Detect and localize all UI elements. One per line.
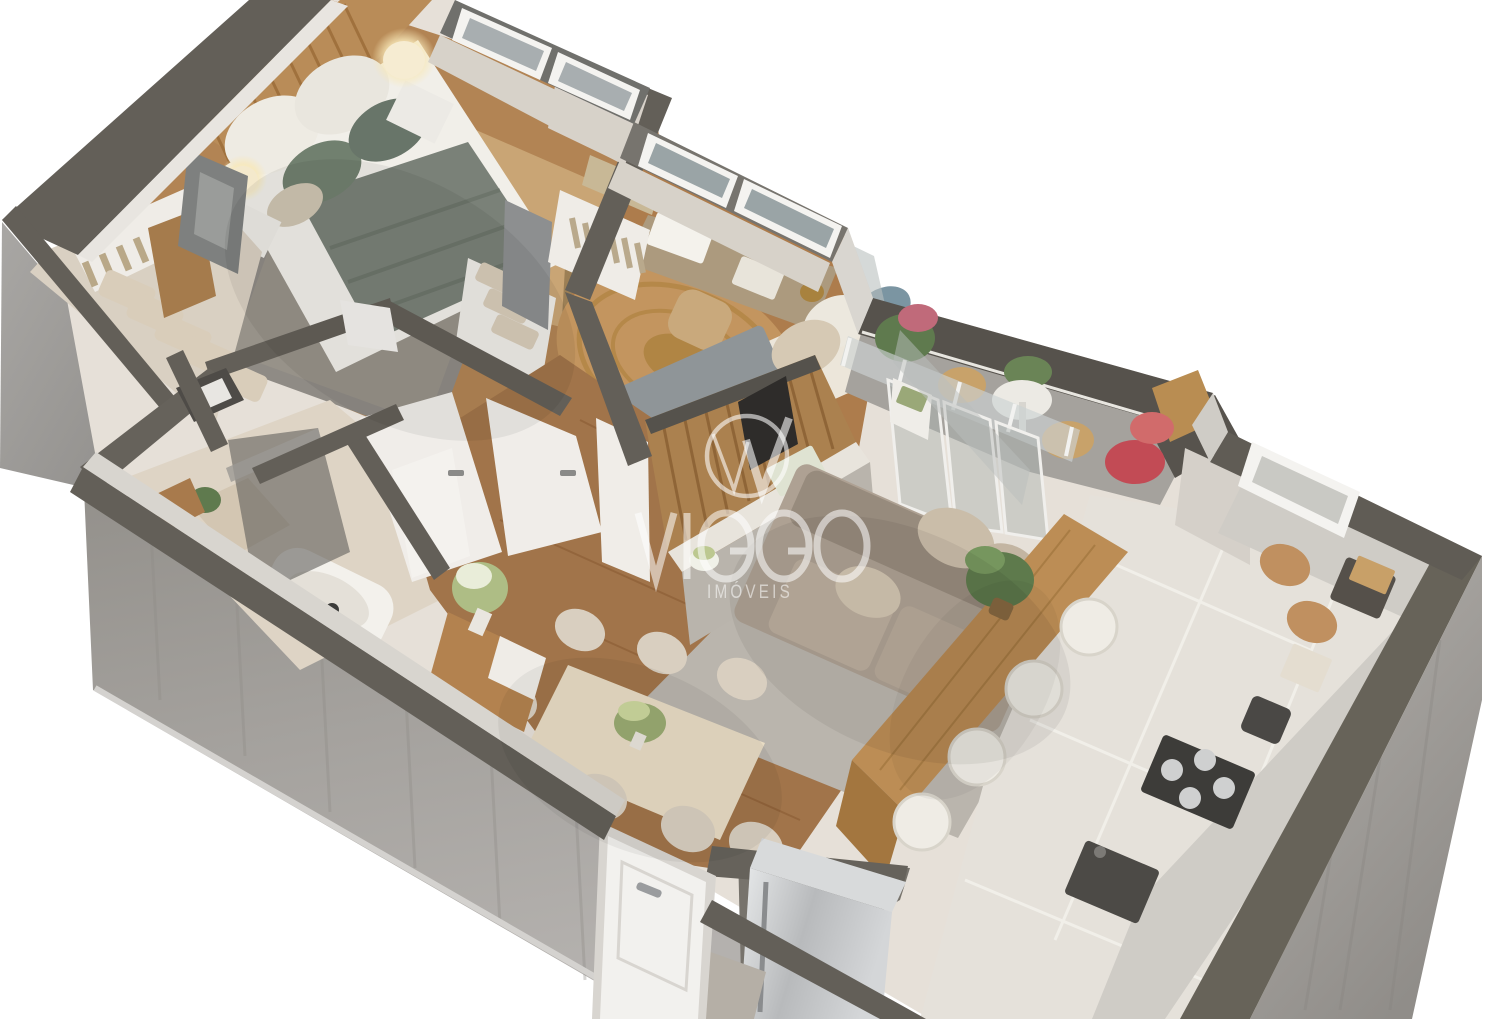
svg-text:IMÓVEIS: IMÓVEIS — [707, 581, 793, 603]
